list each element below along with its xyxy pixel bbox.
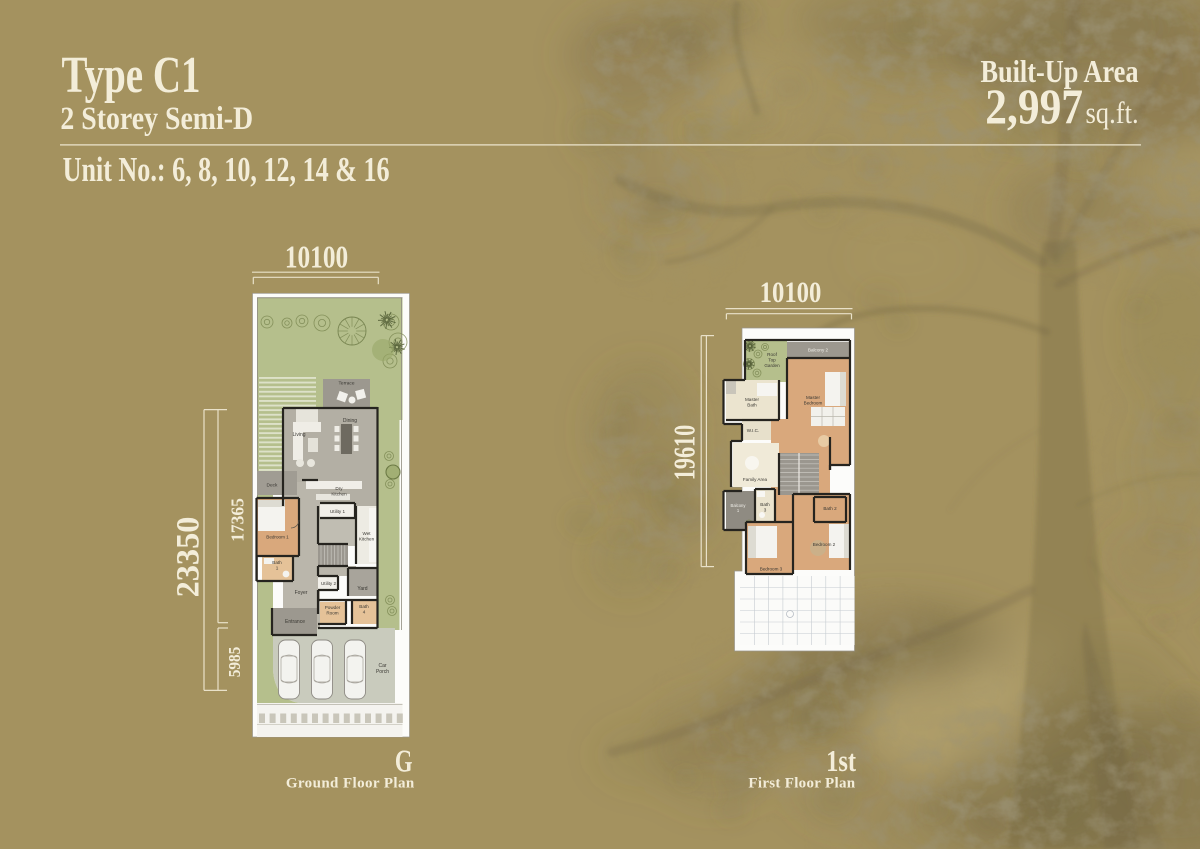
svg-text:23350: 23350 <box>170 517 206 598</box>
svg-text:Top: Top <box>768 358 776 363</box>
svg-text:2,997: 2,997 <box>985 79 1083 134</box>
svg-text:G: G <box>395 744 413 780</box>
svg-text:Roof: Roof <box>767 352 777 357</box>
svg-text:Porch: Porch <box>376 669 389 675</box>
svg-text:2 Storey Semi-D: 2 Storey Semi-D <box>60 100 253 137</box>
svg-text:1: 1 <box>276 566 279 571</box>
svg-text:17365: 17365 <box>227 498 247 542</box>
svg-text:Dining: Dining <box>343 418 357 424</box>
svg-text:Bath: Bath <box>747 403 757 408</box>
svg-text:W.I.C.: W.I.C. <box>747 428 760 433</box>
svg-text:Type C1: Type C1 <box>62 46 201 104</box>
svg-text:Family Area: Family Area <box>743 477 768 482</box>
svg-text:5985: 5985 <box>226 647 244 678</box>
svg-text:Bedroom 2: Bedroom 2 <box>813 542 836 547</box>
svg-text:Wet: Wet <box>362 531 371 536</box>
svg-text:Garden: Garden <box>764 363 780 368</box>
svg-text:Bath: Bath <box>760 502 770 507</box>
svg-text:1st: 1st <box>826 745 856 779</box>
svg-text:Unit No.: 6, 8, 10, 12, 14 & 1: Unit No.: 6, 8, 10, 12, 14 & 16 <box>63 151 390 189</box>
svg-text:Bedroom 1: Bedroom 1 <box>266 535 289 540</box>
svg-text:Balcony 2: Balcony 2 <box>808 348 829 353</box>
svg-text:Foyer: Foyer <box>295 590 308 596</box>
svg-text:Living: Living <box>292 432 305 438</box>
svg-text:sq.ft.: sq.ft. <box>1085 96 1138 130</box>
svg-text:Master: Master <box>745 397 760 402</box>
svg-text:3: 3 <box>764 508 767 513</box>
svg-text:10100: 10100 <box>760 276 822 309</box>
svg-text:Terrace: Terrace <box>339 381 355 387</box>
svg-text:10100: 10100 <box>285 240 348 275</box>
svg-text:Kitchen: Kitchen <box>331 492 347 497</box>
svg-text:First Floor Plan: First Floor Plan <box>748 775 855 791</box>
svg-text:Bath: Bath <box>272 560 282 565</box>
svg-text:Bedroom: Bedroom <box>804 401 823 406</box>
svg-text:4: 4 <box>363 610 366 615</box>
svg-text:Entrance: Entrance <box>285 619 305 625</box>
svg-text:Yard: Yard <box>357 586 367 592</box>
svg-text:Room: Room <box>326 611 338 616</box>
svg-text:Utility 2: Utility 2 <box>321 581 337 586</box>
svg-text:Ground Floor Plan: Ground Floor Plan <box>286 776 415 792</box>
svg-text:Bedroom 3: Bedroom 3 <box>760 567 783 572</box>
svg-text:Dry: Dry <box>335 486 343 491</box>
svg-text:Bath: Bath <box>359 604 369 609</box>
svg-text:Master: Master <box>806 395 821 400</box>
svg-text:Deck: Deck <box>267 483 279 489</box>
svg-text:Utility 1: Utility 1 <box>330 509 346 514</box>
svg-text:Kitchen: Kitchen <box>359 537 375 542</box>
svg-text:Powder: Powder <box>325 605 341 610</box>
svg-text:19610: 19610 <box>667 425 701 480</box>
svg-text:Bath 2: Bath 2 <box>823 506 837 511</box>
